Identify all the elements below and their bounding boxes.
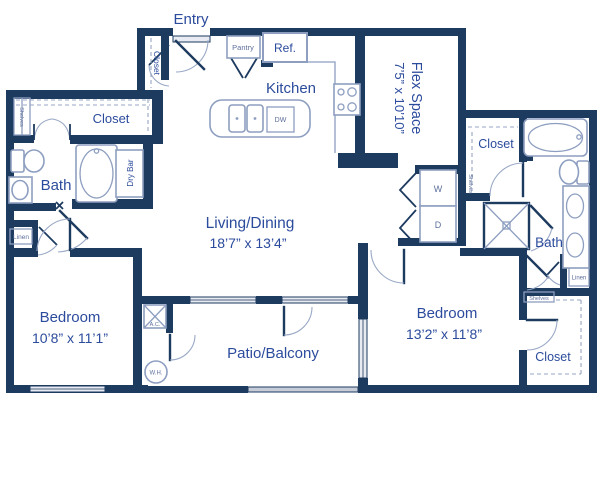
vanity-right bbox=[563, 186, 589, 268]
living-dims: 18’7” x 13’4” bbox=[209, 235, 286, 251]
entry-label: Entry bbox=[173, 11, 209, 28]
kitchen-label: Kitchen bbox=[266, 80, 316, 97]
linen-left-door-leaf bbox=[39, 227, 57, 245]
toilet-bowl bbox=[24, 150, 44, 172]
toilet-right-bowl bbox=[560, 160, 579, 184]
bath-right-door-leaf bbox=[527, 256, 548, 277]
shelves-master-label: Shelves bbox=[467, 174, 473, 194]
bedroom1-dims: 10’8” x 11’1” bbox=[32, 330, 108, 346]
shelves-left-label: Shelves bbox=[18, 107, 24, 127]
closet2-label: Closet bbox=[535, 350, 571, 364]
refrigerator-label: Ref. bbox=[274, 41, 296, 55]
closet-left-label: Closet bbox=[93, 111, 130, 126]
dry-bar-label: Dry Bar bbox=[126, 159, 135, 186]
shelves-master-label-group: Shelves bbox=[467, 174, 473, 194]
pantry-label: Pantry bbox=[232, 43, 254, 52]
island-sink-drain bbox=[236, 117, 239, 120]
patio-label: Patio/Balcony bbox=[227, 345, 319, 362]
flex-space-label: Flex Space bbox=[408, 62, 424, 135]
pantry-door-leaf bbox=[231, 58, 243, 78]
linen-left-door-arc bbox=[38, 245, 57, 255]
toilet-tank bbox=[11, 150, 24, 172]
living-label: Living/Dining bbox=[206, 215, 295, 232]
sink-left bbox=[12, 181, 28, 200]
washer-label: W bbox=[434, 184, 443, 194]
flex-space-label-group: Flex Space 7’5” x 10’10” bbox=[392, 62, 424, 135]
pantry-door-leaf bbox=[245, 58, 257, 78]
dryer-label: D bbox=[435, 220, 442, 230]
floor-plan-svg: Entry Kitchen Pantry Ref. DW Flex Space … bbox=[0, 0, 600, 490]
linen-right-door-leaf bbox=[547, 262, 559, 275]
floor-plan-page: Entry Kitchen Pantry Ref. DW Flex Space … bbox=[0, 0, 600, 490]
dry-bar-label-group: Dry Bar bbox=[126, 159, 135, 186]
bath-right-label: Bath bbox=[535, 235, 563, 250]
master-closet-label: Closet bbox=[478, 137, 514, 151]
linen-right-label: Linen bbox=[572, 276, 587, 282]
master-closet-door-arc bbox=[490, 163, 523, 196]
bedroom1-door-arc bbox=[37, 219, 70, 251]
island-sink-drain bbox=[254, 117, 257, 120]
wh-label: W.H. bbox=[150, 371, 163, 377]
ac-label: A.C. bbox=[150, 322, 161, 328]
entry-threshold bbox=[173, 36, 210, 42]
bedroom2-dims: 13’2” x 11’8” bbox=[406, 326, 482, 342]
bedroom2-door-arc bbox=[371, 250, 404, 283]
flex-space-dims: 7’5” x 10’10” bbox=[392, 62, 407, 134]
patio-railing bbox=[248, 387, 358, 392]
shower-door-leaf bbox=[531, 206, 552, 228]
entry-door-leaf bbox=[176, 41, 204, 69]
linen-left-label: Linen bbox=[13, 234, 29, 241]
patio-door-arc bbox=[284, 307, 312, 335]
bath-left-door-leaf bbox=[60, 211, 87, 238]
entry-closet-label: Closet bbox=[152, 51, 162, 76]
bathtub-right bbox=[524, 119, 587, 156]
entry-closet-label-group: Closet bbox=[152, 51, 162, 76]
closet-french-door-arc bbox=[52, 119, 70, 140]
shelves-left-label-group: Shelves bbox=[18, 107, 24, 127]
bedroom1-label: Bedroom bbox=[40, 309, 101, 326]
wh-closet-door-arc bbox=[170, 335, 195, 360]
closet2-door-arc bbox=[527, 320, 557, 350]
dishwasher-label: DW bbox=[275, 117, 287, 124]
stove bbox=[334, 84, 360, 115]
closet-french-door-arc bbox=[34, 119, 52, 140]
bath-left-label: Bath bbox=[41, 177, 72, 194]
bedroom2-label: Bedroom bbox=[417, 305, 478, 322]
kitchen-counter bbox=[307, 62, 335, 153]
laundry-bifold-door bbox=[400, 173, 416, 207]
shelves-closet2-label: Shelves bbox=[529, 296, 549, 302]
